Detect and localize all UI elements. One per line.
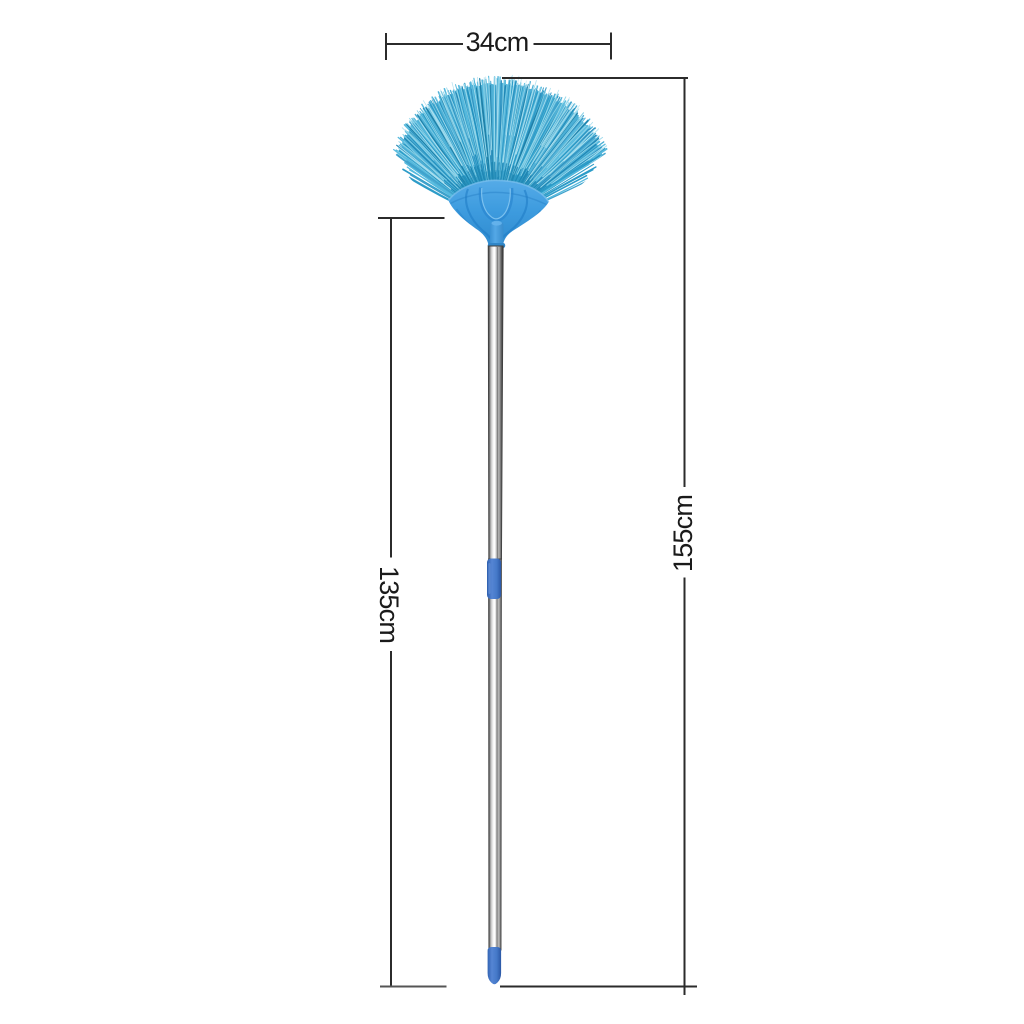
svg-text:155cm: 155cm [668,495,698,572]
svg-text:34cm: 34cm [466,27,529,57]
svg-text:135cm: 135cm [374,566,404,643]
